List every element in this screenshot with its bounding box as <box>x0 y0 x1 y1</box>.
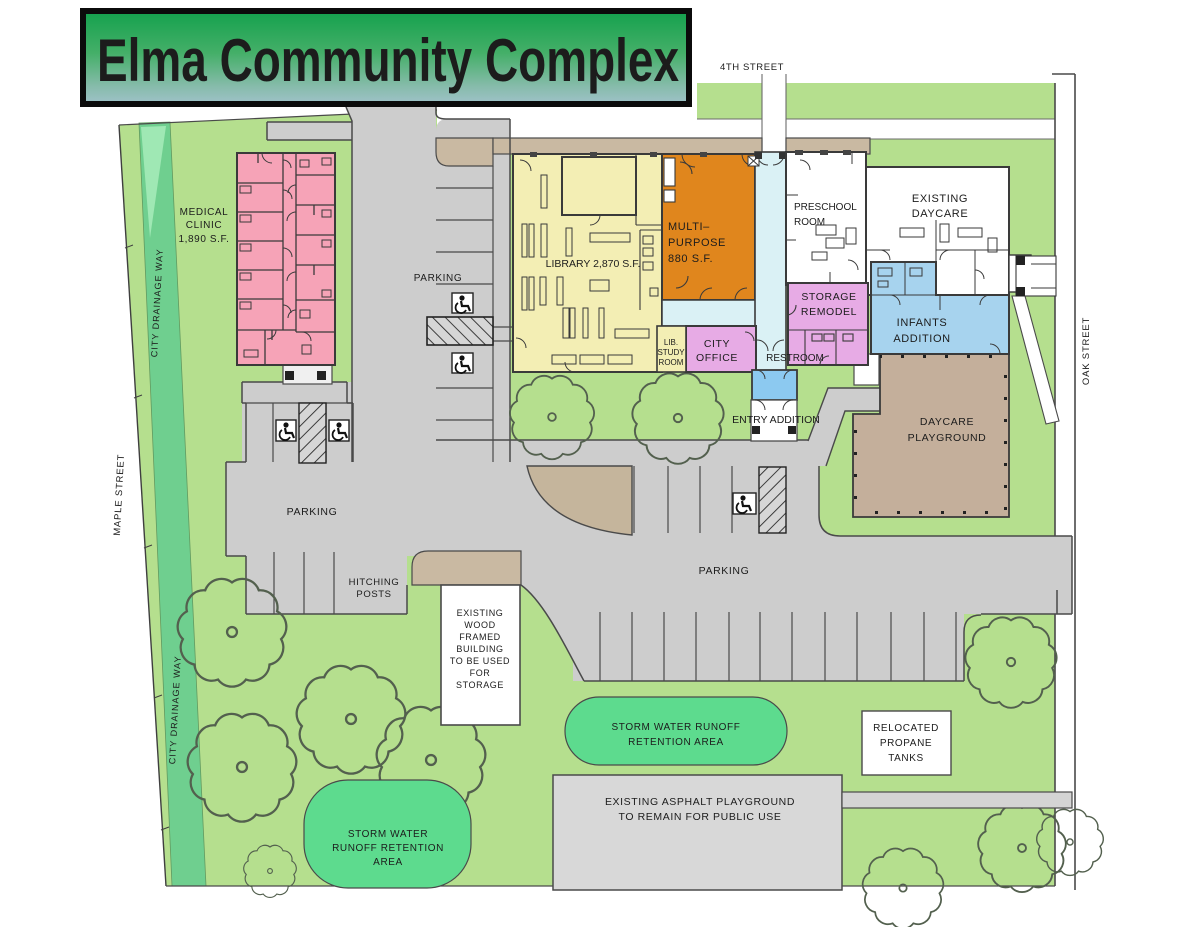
svg-text:1,890 S.F.: 1,890 S.F. <box>178 234 229 245</box>
svg-text:PRESCHOOL: PRESCHOOL <box>794 202 857 213</box>
svg-text:TO REMAIN FOR PUBLIC USE: TO REMAIN FOR PUBLIC USE <box>619 811 782 823</box>
svg-text:DAYCARE: DAYCARE <box>912 208 969 220</box>
svg-text:880 S.F.: 880 S.F. <box>668 253 713 265</box>
svg-text:OFFICE: OFFICE <box>696 352 738 364</box>
svg-text:Elma Community Complex: Elma Community Complex <box>97 27 679 94</box>
svg-text:CITY: CITY <box>704 338 730 350</box>
svg-text:LIB.: LIB. <box>664 338 678 347</box>
svg-text:PARKING: PARKING <box>287 506 338 518</box>
svg-text:RELOCATED: RELOCATED <box>873 723 939 734</box>
svg-text:RETENTION AREA: RETENTION AREA <box>628 737 724 748</box>
svg-text:PURPOSE: PURPOSE <box>668 237 726 249</box>
svg-text:BUILDING: BUILDING <box>456 644 503 654</box>
svg-text:STORM WATER RUNOFF: STORM WATER RUNOFF <box>612 722 741 733</box>
svg-text:EXISTING: EXISTING <box>457 608 504 618</box>
svg-text:PLAYGROUND: PLAYGROUND <box>908 432 987 444</box>
svg-text:EXISTING: EXISTING <box>912 193 968 205</box>
svg-text:4TH STREET: 4TH STREET <box>720 62 784 73</box>
svg-text:WOOD: WOOD <box>464 620 495 630</box>
svg-text:EXISTING ASPHALT PLAYGROUND: EXISTING ASPHALT PLAYGROUND <box>605 796 795 808</box>
svg-text:ROOM: ROOM <box>659 358 684 367</box>
svg-text:FRAMED: FRAMED <box>459 632 501 642</box>
svg-text:PROPANE: PROPANE <box>880 738 932 749</box>
svg-text:POSTS: POSTS <box>356 589 391 600</box>
svg-text:REMODEL: REMODEL <box>801 306 857 318</box>
svg-text:PARKING: PARKING <box>699 565 750 577</box>
svg-text:MEDICAL: MEDICAL <box>180 207 229 218</box>
svg-text:ROOM: ROOM <box>794 217 825 228</box>
svg-text:STUDY: STUDY <box>657 348 685 357</box>
svg-text:CLINIC: CLINIC <box>186 220 222 231</box>
svg-text:INFANTS: INFANTS <box>897 317 948 329</box>
svg-text:ENTRY ADDITION: ENTRY ADDITION <box>732 414 820 426</box>
svg-text:STORM WATER: STORM WATER <box>348 829 428 840</box>
svg-text:DAYCARE: DAYCARE <box>920 416 974 428</box>
svg-text:FOR: FOR <box>470 668 491 678</box>
svg-text:RESTROOM: RESTROOM <box>766 353 824 364</box>
svg-text:OAK STREET: OAK STREET <box>1081 317 1092 385</box>
svg-text:STORAGE: STORAGE <box>456 680 504 690</box>
svg-text:HITCHING: HITCHING <box>349 577 400 588</box>
svg-text:LIBRARY 2,870 S.F.: LIBRARY 2,870 S.F. <box>546 258 641 270</box>
svg-text:RUNOFF RETENTION: RUNOFF RETENTION <box>332 843 444 854</box>
svg-text:MULTI–: MULTI– <box>668 221 710 233</box>
svg-text:ADDITION: ADDITION <box>893 333 950 345</box>
svg-text:STORAGE: STORAGE <box>801 291 856 303</box>
svg-text:TANKS: TANKS <box>888 753 924 764</box>
svg-text:AREA: AREA <box>373 857 403 868</box>
svg-text:TO BE USED: TO BE USED <box>450 656 510 666</box>
svg-text:PARKING: PARKING <box>414 273 462 284</box>
